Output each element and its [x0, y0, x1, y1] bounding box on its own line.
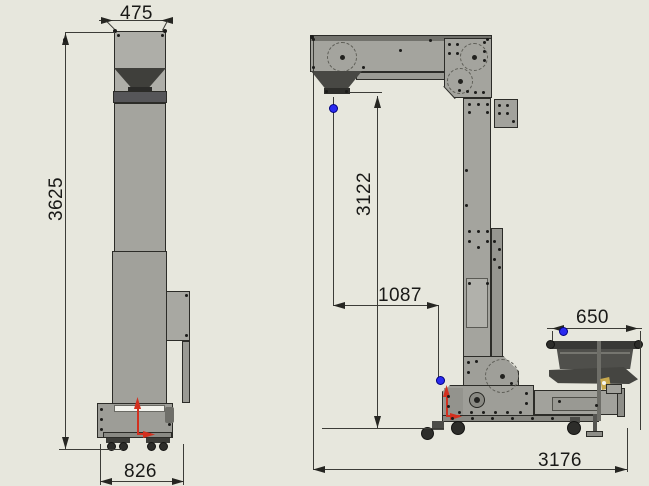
- caster-wheel: [451, 421, 465, 435]
- bolt-icon: [482, 411, 485, 414]
- dim-extension-line: [552, 331, 553, 341]
- bolt-icon: [456, 52, 459, 55]
- dim-extension-line: [313, 40, 314, 469]
- bolt-icon: [399, 49, 402, 52]
- dim-arrow: [626, 325, 638, 332]
- bolt-icon: [558, 400, 561, 403]
- bolt-icon: [483, 41, 486, 44]
- dim-label-discharge-offset: 1087: [378, 286, 420, 305]
- dim-extension-line: [100, 444, 101, 485]
- bolt-icon: [486, 230, 489, 233]
- bolt-icon: [345, 90, 348, 93]
- bolt-icon: [465, 169, 468, 172]
- bolt-icon: [486, 38, 489, 41]
- bolt-icon: [506, 112, 509, 115]
- drive-motor-hub: [474, 397, 480, 403]
- bolt-icon: [477, 230, 480, 233]
- dim-label-base-width: 826: [124, 462, 156, 481]
- bolt-icon: [491, 417, 494, 420]
- bolt-icon: [467, 371, 470, 374]
- hopper-rim-cap: [634, 340, 643, 349]
- bolt-icon: [551, 417, 554, 420]
- hopper-rim-cap: [546, 340, 555, 349]
- infeed-downpipe: [182, 341, 190, 403]
- bolt-icon: [498, 266, 501, 269]
- bolt-icon: [468, 240, 471, 243]
- dim-label-infeed-hopper-width: 650: [576, 308, 608, 327]
- bolt-icon: [466, 90, 469, 93]
- bolt-icon: [312, 38, 315, 41]
- bolt-icon: [117, 34, 120, 37]
- bolt-icon: [185, 294, 188, 297]
- bolt-icon: [312, 66, 315, 69]
- vertex-marker-icon: [559, 327, 568, 336]
- bolt-icon: [185, 334, 188, 337]
- drawing-canvas: 475 3625 826: [0, 0, 649, 486]
- bolt-icon: [525, 402, 528, 405]
- vertex-marker-icon: [329, 104, 338, 113]
- bolt-icon: [477, 103, 480, 106]
- bolt-icon: [465, 204, 468, 207]
- bolt-icon: [506, 411, 509, 414]
- dim-label-vertical-height: 3122: [355, 171, 371, 217]
- bolt-icon: [471, 417, 474, 420]
- leveling-foot-pad: [586, 431, 603, 437]
- vertex-marker-icon: [436, 376, 445, 385]
- bolt-icon: [494, 411, 497, 414]
- dim-extension-line: [627, 428, 628, 472]
- dim-arrow: [313, 466, 325, 473]
- caster-wheel: [567, 421, 581, 435]
- bolt-icon: [429, 39, 432, 42]
- bolt-icon: [493, 240, 496, 243]
- hopper-rim: [549, 341, 640, 349]
- top-arm-subrail: [356, 72, 445, 80]
- dim-extension-line: [640, 331, 641, 430]
- bolt-icon: [447, 405, 450, 408]
- bolt-icon: [458, 89, 461, 92]
- caster-wheel: [159, 442, 168, 451]
- sprocket-pitch-circle: [460, 43, 488, 71]
- leveling-foot-stem: [593, 414, 597, 431]
- bolt-icon: [475, 360, 478, 363]
- bolt-icon: [168, 423, 171, 426]
- bolt-icon: [325, 90, 328, 93]
- infeed-hopper-chute: [549, 367, 638, 384]
- bolt-icon: [474, 91, 477, 94]
- step-bracket: [606, 384, 622, 394]
- bolt-icon: [161, 34, 164, 37]
- bolt-icon: [100, 418, 103, 421]
- bolt-icon: [498, 104, 501, 107]
- dim-arrow: [374, 416, 381, 428]
- bolt-icon: [448, 52, 451, 55]
- dim-line: [377, 96, 378, 428]
- dim-extension-line: [438, 306, 439, 378]
- bolt-icon: [362, 66, 365, 69]
- bolt-icon: [525, 392, 528, 395]
- dim-arrow: [100, 478, 112, 485]
- dim-label-overall-height: 3625: [47, 176, 63, 222]
- bolt-icon: [467, 361, 470, 364]
- bolt-icon: [486, 240, 489, 243]
- dim-extension-line: [59, 449, 122, 450]
- bolt-icon: [456, 43, 459, 46]
- dim-label-overall-length: 3176: [538, 451, 580, 470]
- bolt-icon: [486, 111, 489, 114]
- bolt-icon: [493, 258, 496, 261]
- head-band: [113, 91, 167, 103]
- sprocket-pitch-circle: [485, 359, 519, 393]
- bolt-icon: [531, 417, 534, 420]
- column-upper-front: [114, 103, 166, 252]
- bolt-icon: [510, 382, 513, 385]
- dim-extension-line: [322, 428, 444, 429]
- bolt-icon: [477, 246, 480, 249]
- dim-attach-point: [63, 38, 67, 42]
- bolt-icon: [486, 103, 489, 106]
- bolt-icon: [483, 50, 486, 53]
- dim-arrow: [374, 96, 381, 108]
- bolt-icon: [483, 59, 486, 62]
- bolt-icon: [468, 103, 471, 106]
- bolt-icon: [451, 417, 454, 420]
- dim-attach-point: [163, 29, 167, 33]
- bolt-icon: [468, 282, 471, 285]
- drain-elbow: [165, 407, 174, 423]
- bolt-icon: [486, 282, 489, 285]
- bolt-icon: [498, 112, 501, 115]
- dim-extension-line: [65, 32, 115, 33]
- dim-extension-line: [183, 444, 184, 485]
- dim-extension-line: [350, 92, 382, 93]
- bolt-icon: [506, 104, 509, 107]
- bolt-icon: [595, 404, 598, 407]
- dim-extension-line: [333, 97, 334, 306]
- bolt-icon: [447, 395, 450, 398]
- bolt-icon: [470, 411, 473, 414]
- column-lower-front: [112, 251, 167, 404]
- bolt-icon: [498, 248, 501, 251]
- bolt-icon: [100, 408, 103, 411]
- bolt-icon: [512, 120, 515, 123]
- bolt-icon: [458, 411, 461, 414]
- dim-arrow: [615, 466, 627, 473]
- caster-wheel: [147, 442, 156, 451]
- hopper-support-post: [597, 341, 601, 421]
- column-access-panel: [466, 278, 488, 328]
- dim-arrow: [62, 437, 69, 449]
- dim-line: [65, 33, 66, 449]
- bolt-icon: [519, 411, 522, 414]
- bolt-icon: [100, 428, 103, 431]
- bolt-icon: [511, 417, 514, 420]
- hopper-highlight: [560, 352, 630, 354]
- bolt-icon: [468, 230, 471, 233]
- sprocket-pitch-circle: [327, 42, 357, 72]
- column-side: [463, 98, 491, 390]
- dim-arrow: [333, 302, 345, 309]
- bolt-icon: [468, 111, 471, 114]
- bolt-icon: [448, 43, 451, 46]
- bolt-icon: [482, 91, 485, 94]
